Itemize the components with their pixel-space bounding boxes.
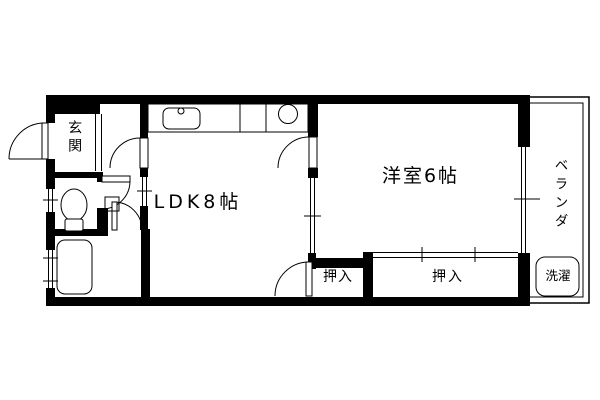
wall-ldk-left-2 [140,168,148,177]
wall-toilet-right-bottom [97,208,108,232]
wall-closet-small-top [310,258,367,268]
wall-genkan-lintel [55,104,100,114]
wall-left-4 [46,288,55,306]
label-western-room: 洋室6帖 [348,166,493,188]
hall-ldk-door [110,138,148,168]
bath-window [43,250,58,288]
sliding-partitions [96,114,519,262]
genkan-step-line [96,114,102,171]
wall-ldk-bedroom-1 [308,104,318,137]
label-closet-large: 押入 [416,269,480,285]
wall-bottom [46,297,530,306]
floor-plan: 玄関 LDK8帖 洋室6帖 押入 押入 ベランダ 洗濯 [0,0,600,400]
floor-plan-drawing [0,0,600,400]
wall-top [46,95,530,104]
wall-genkan-bottom [46,172,103,178]
kitchen-counter [148,104,308,132]
entrance-door [9,123,48,159]
ldk-bedroom-sliding-door [304,178,321,253]
label-laundry: 洗濯 [536,269,580,283]
bathtub [57,240,92,294]
closet-sliding-doors [373,247,518,262]
wall-left-1 [46,95,55,123]
washroom-door [112,202,142,230]
toilet-window [43,188,58,212]
label-closet-small: 押入 [313,269,363,285]
label-veranda: ベランダ [551,158,567,232]
closet-small-door [275,262,312,296]
ldk-bedroom-door [278,137,317,168]
label-ldk: LDK8帖 [142,192,254,214]
wall-right-2 [518,253,530,305]
label-genkan: 玄関 [66,120,82,156]
wall-right-1 [518,95,530,147]
toilet-tank [65,219,83,231]
wall-closet-divider [363,252,373,298]
toilet-fixture [61,189,87,231]
wall-ldk-bedroom-2 [308,168,318,178]
wall-ldk-left-1 [140,104,148,138]
wall-bath-right [141,229,150,299]
bedroom-window [514,147,540,253]
